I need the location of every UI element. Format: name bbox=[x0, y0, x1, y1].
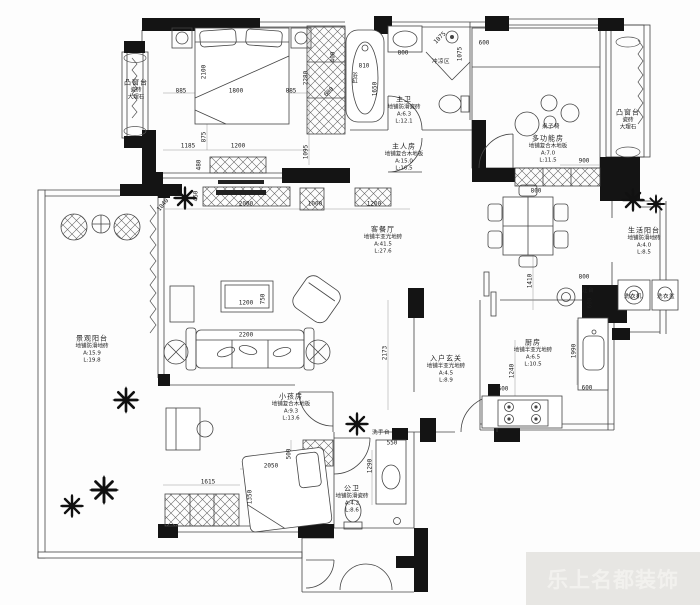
kitchen-counter bbox=[482, 318, 608, 428]
plant-icon bbox=[646, 194, 665, 213]
washbasin-public bbox=[376, 440, 406, 525]
plant-icon bbox=[345, 412, 369, 436]
kids-wardrobe bbox=[165, 494, 239, 526]
bathtub-shape bbox=[346, 30, 384, 122]
dining-set bbox=[488, 185, 568, 267]
dresser-master bbox=[210, 157, 266, 173]
door-master-bath bbox=[388, 96, 422, 130]
curtain-icon bbox=[150, 205, 156, 333]
planter-icon bbox=[114, 214, 140, 240]
curtain-icon bbox=[638, 40, 643, 124]
washing-machine-shape bbox=[618, 280, 650, 310]
plant-icon bbox=[113, 387, 139, 413]
sliding-door-kitchen bbox=[484, 272, 489, 296]
side-cabinet bbox=[300, 188, 324, 210]
coffee-table bbox=[221, 281, 273, 312]
toilet-master bbox=[439, 95, 469, 113]
floor-drain-icon bbox=[394, 518, 401, 525]
shoe-cabinet bbox=[355, 188, 391, 206]
toilet-public bbox=[344, 500, 362, 529]
door-public-bath bbox=[334, 438, 370, 474]
laundry-basin-shape bbox=[652, 280, 678, 310]
planters bbox=[61, 214, 140, 240]
plant-icon bbox=[60, 494, 84, 518]
floor-plan-page: 凸窗台瓷砖大理石主卫地铺防滑瓷砖A:6.3L:12.1主人房地铺复合木地板A:1… bbox=[0, 0, 700, 605]
sliding-door-kitchen bbox=[491, 292, 496, 316]
wardrobe-master bbox=[307, 26, 345, 134]
tv-cabinet bbox=[203, 187, 290, 206]
door-master-bedroom bbox=[388, 138, 422, 172]
armchair bbox=[289, 272, 344, 326]
curtain-tie-icon bbox=[616, 147, 640, 157]
door-kids-room bbox=[299, 392, 333, 426]
tv-living bbox=[216, 190, 266, 195]
kids-bed bbox=[242, 447, 333, 532]
furniture bbox=[61, 26, 678, 532]
side-table bbox=[170, 286, 194, 322]
master-bed bbox=[195, 28, 289, 124]
water-heater bbox=[557, 288, 575, 306]
floor-plan-drawing bbox=[0, 0, 700, 605]
sofa bbox=[186, 328, 314, 370]
curtain-icon bbox=[132, 58, 137, 118]
tv-master bbox=[218, 180, 264, 184]
door-entrance-double bbox=[340, 564, 392, 590]
washbasin-master bbox=[388, 26, 422, 52]
cabinet-row bbox=[515, 168, 600, 186]
watermark: 乐上名都装饰 bbox=[526, 552, 700, 605]
shower-head-icon bbox=[446, 31, 458, 43]
planter-icon bbox=[61, 214, 87, 240]
round-table-set bbox=[515, 95, 579, 136]
kids-desk bbox=[166, 408, 213, 450]
curtain-tie-icon bbox=[616, 37, 640, 47]
door-vestibule bbox=[306, 560, 334, 588]
plant-icon bbox=[90, 476, 119, 505]
